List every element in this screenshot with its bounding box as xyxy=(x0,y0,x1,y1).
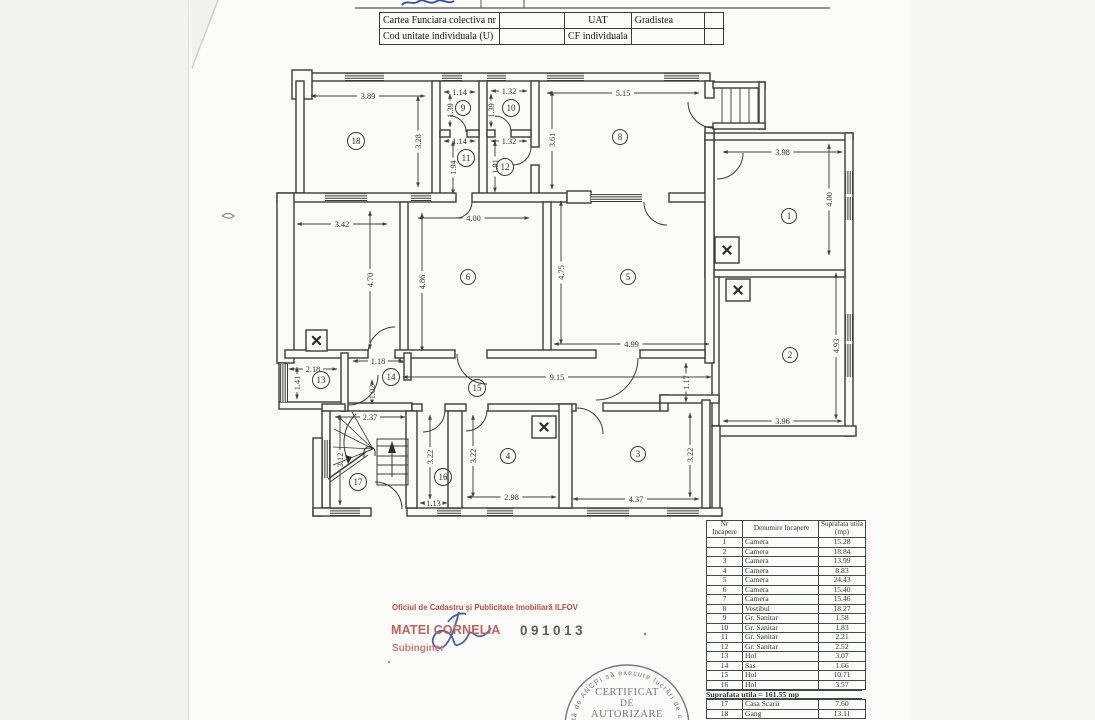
svg-text:6: 6 xyxy=(466,272,471,282)
svg-text:8: 8 xyxy=(618,132,623,142)
svg-text:4: 4 xyxy=(506,451,511,461)
svg-text:3.61: 3.61 xyxy=(548,133,557,148)
svg-text:1.94: 1.94 xyxy=(449,159,458,174)
svg-text:5: 5 xyxy=(626,272,631,282)
svg-text:CERTIFICAT: CERTIFICAT xyxy=(595,687,659,698)
svg-text:1.13: 1.13 xyxy=(426,499,441,508)
svg-text:9.15: 9.15 xyxy=(550,373,565,382)
svg-text:11: 11 xyxy=(462,153,471,163)
svg-text:3.22: 3.22 xyxy=(469,449,478,464)
svg-text:1.02: 1.02 xyxy=(368,385,377,400)
svg-text:5.15: 5.15 xyxy=(616,89,631,98)
svg-text:4.99: 4.99 xyxy=(624,340,639,349)
svg-text:4.86: 4.86 xyxy=(418,275,427,290)
svg-text:2: 2 xyxy=(788,350,793,360)
svg-text:3.96: 3.96 xyxy=(775,417,790,426)
svg-text:1.32: 1.32 xyxy=(502,87,517,96)
svg-text:3.98: 3.98 xyxy=(775,148,790,157)
svg-text:13: 13 xyxy=(317,375,327,385)
svg-text:3: 3 xyxy=(636,449,641,459)
svg-text:1.39: 1.39 xyxy=(487,103,496,118)
svg-text:2.98: 2.98 xyxy=(504,493,519,502)
svg-text:3.89: 3.89 xyxy=(361,92,376,101)
svg-text:3.22: 3.22 xyxy=(686,448,695,463)
svg-text:DE: DE xyxy=(620,699,634,709)
svg-text:1.18: 1.18 xyxy=(371,357,386,366)
svg-text:AUTORIZARE: AUTORIZARE xyxy=(591,709,663,720)
svg-text:3.28: 3.28 xyxy=(414,134,423,149)
svg-text:12: 12 xyxy=(501,162,510,172)
svg-text:3.12: 3.12 xyxy=(336,453,345,468)
svg-text:4.93: 4.93 xyxy=(832,339,841,354)
svg-text:1.14: 1.14 xyxy=(452,137,467,146)
svg-text:2.37: 2.37 xyxy=(363,413,378,422)
svg-text:3.22: 3.22 xyxy=(426,450,435,465)
svg-text:10: 10 xyxy=(507,103,517,113)
svg-text:4.00: 4.00 xyxy=(825,192,834,207)
svg-text:4.00: 4.00 xyxy=(466,214,481,223)
svg-text:1.39: 1.39 xyxy=(446,103,455,118)
svg-text:4.37: 4.37 xyxy=(629,495,644,504)
svg-text:4.70: 4.70 xyxy=(366,273,375,288)
svg-text:15: 15 xyxy=(473,383,483,393)
svg-text:1.32: 1.32 xyxy=(502,137,517,146)
svg-text:1: 1 xyxy=(787,211,792,221)
svg-text:3.42: 3.42 xyxy=(335,220,350,229)
svg-text:1.17: 1.17 xyxy=(682,375,691,390)
svg-text:18: 18 xyxy=(352,136,362,146)
svg-text:16: 16 xyxy=(439,472,449,482)
svg-text:17: 17 xyxy=(354,477,364,487)
svg-text:4.75: 4.75 xyxy=(557,265,566,280)
svg-text:9: 9 xyxy=(461,103,466,113)
svg-text:1.41: 1.41 xyxy=(293,376,302,391)
svg-text:1.14: 1.14 xyxy=(452,88,467,97)
svg-text:14: 14 xyxy=(387,372,397,382)
